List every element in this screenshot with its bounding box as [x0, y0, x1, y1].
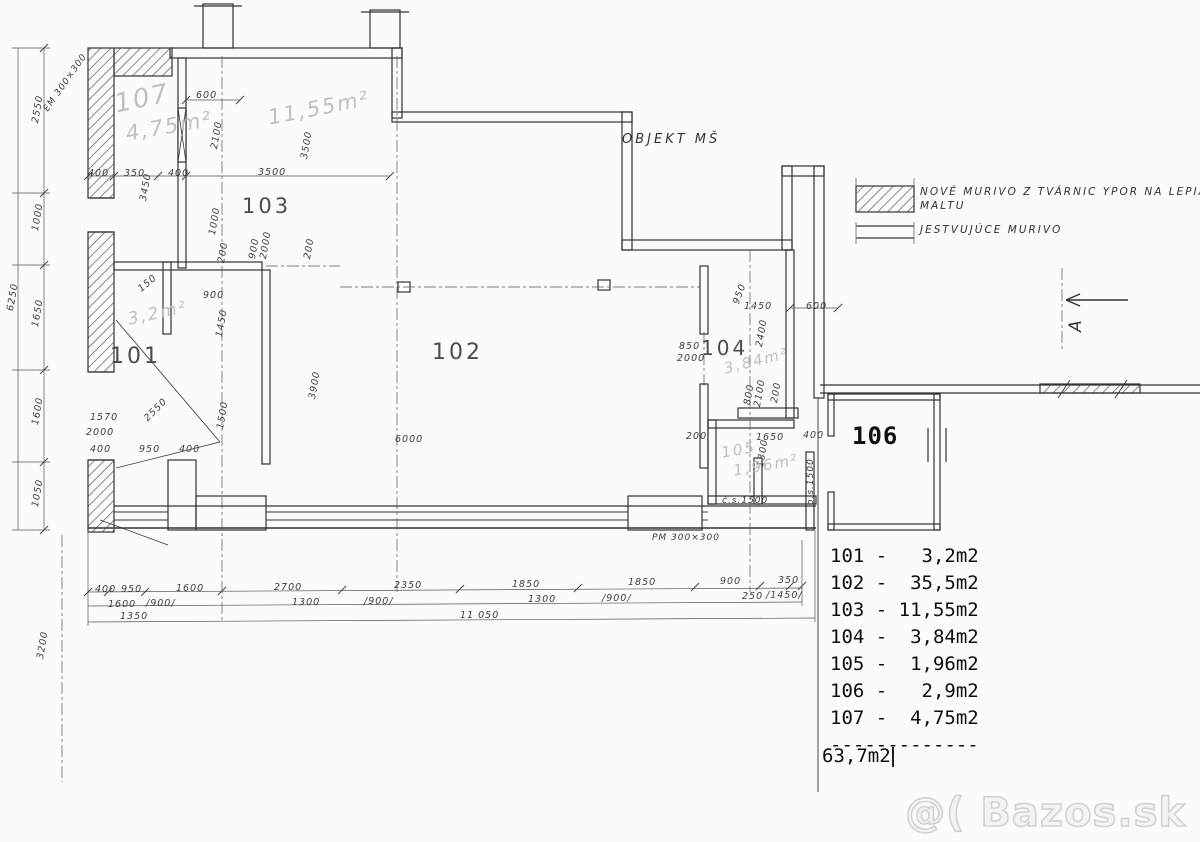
room-area-list: 101 - 3,2m2102 - 35,5m2103 - 11,55m2104 … [830, 543, 979, 759]
legend-swatches [856, 178, 914, 244]
room-number-102: 102 [432, 340, 483, 365]
watermark: @( Bazos.sk [905, 790, 1186, 836]
walls [88, 4, 1200, 545]
dimension-label: 950 [121, 584, 142, 595]
dimension-label: 400 [95, 584, 116, 595]
dimension-label: 250 [742, 591, 763, 602]
total-area-value: 63,7m2 [822, 745, 891, 767]
note-os-1500: o.s.1500 [806, 458, 816, 505]
dimension-label: 1300 [292, 597, 320, 608]
dimension-label: /900/ [364, 596, 394, 607]
dimension-label: 950 [139, 444, 160, 455]
area-line: 106 - 2,9m2 [830, 678, 979, 705]
dimension-label: 3500 [258, 167, 286, 178]
dimension-label: /1450/ [766, 590, 803, 601]
area-line: 102 - 35,5m2 [830, 570, 979, 597]
dimension-label: 600 [196, 90, 217, 101]
dimension-label: 1850 [512, 579, 540, 590]
note-pm-300x300: PM 300×300 [652, 533, 720, 543]
dimension-label: 2350 [394, 580, 422, 591]
dimension-label: 1300 [528, 594, 556, 605]
dimension-label: 400 [90, 444, 111, 455]
dimension-label: 400 [803, 430, 824, 441]
floorplan-scan: OBJEKT MŠ NOVÉ MURIVO Z TVÁRNIC YPOR NA … [0, 0, 1200, 842]
drawing-title: OBJEKT MŠ [622, 132, 720, 147]
area-line: 104 - 3,84m2 [830, 624, 979, 651]
dimension-label: 11 050 [460, 610, 499, 621]
dimension-label: 200 [686, 431, 707, 442]
dimension-label: 1850 [628, 577, 656, 588]
total-area: 63,7m2 [822, 745, 894, 767]
dimension-label: 1600 [176, 583, 204, 594]
dimension-label: 2000 [86, 427, 114, 438]
note-cs-1500: č.s.1500 [722, 496, 768, 506]
dimension-label: 2700 [274, 582, 302, 593]
area-line: 105 - 1,96m2 [830, 651, 979, 678]
legend-new-masonry-label: NOVÉ MURIVO Z TVÁRNIC YPOR NA LEPIACU [920, 186, 1200, 198]
legend-existing-masonry-label: JESTVUJÚCE MURIVO [920, 224, 1062, 236]
dimension-label: 850 [679, 341, 700, 352]
room-number-104: 104 [701, 336, 748, 360]
area-line: 103 - 11,55m2 [830, 597, 979, 624]
text-cursor [892, 747, 894, 767]
dimension-label: 1570 [90, 412, 118, 423]
dimension-label: 1600 [108, 599, 136, 610]
dimension-label: 6000 [395, 434, 423, 445]
dimension-label: 1350 [120, 611, 148, 622]
legend-new-masonry-label-2: MALTU [920, 200, 965, 212]
room-number-103: 103 [242, 194, 291, 218]
dimension-label: 900 [203, 290, 224, 301]
dimension-label: 400 [88, 168, 109, 179]
dimension-label: 1450 [744, 301, 772, 312]
section-arrow [1066, 294, 1128, 306]
area-line: 107 - 4,75m2 [830, 705, 979, 732]
dimension-label: /900/ [146, 598, 176, 609]
dimension-label: 350 [778, 575, 799, 586]
area-line: 101 - 3,2m2 [830, 543, 979, 570]
room-number-101: 101 [110, 344, 161, 369]
dimension-label: 400 [179, 444, 200, 455]
room-number-106: 106 [852, 422, 898, 450]
dimension-label: 400 [168, 168, 189, 179]
dimension-label: /900/ [602, 593, 632, 604]
section-marker-letter: A [1066, 320, 1086, 332]
dimension-label: 600 [806, 301, 827, 312]
dimension-label: 900 [720, 576, 741, 587]
